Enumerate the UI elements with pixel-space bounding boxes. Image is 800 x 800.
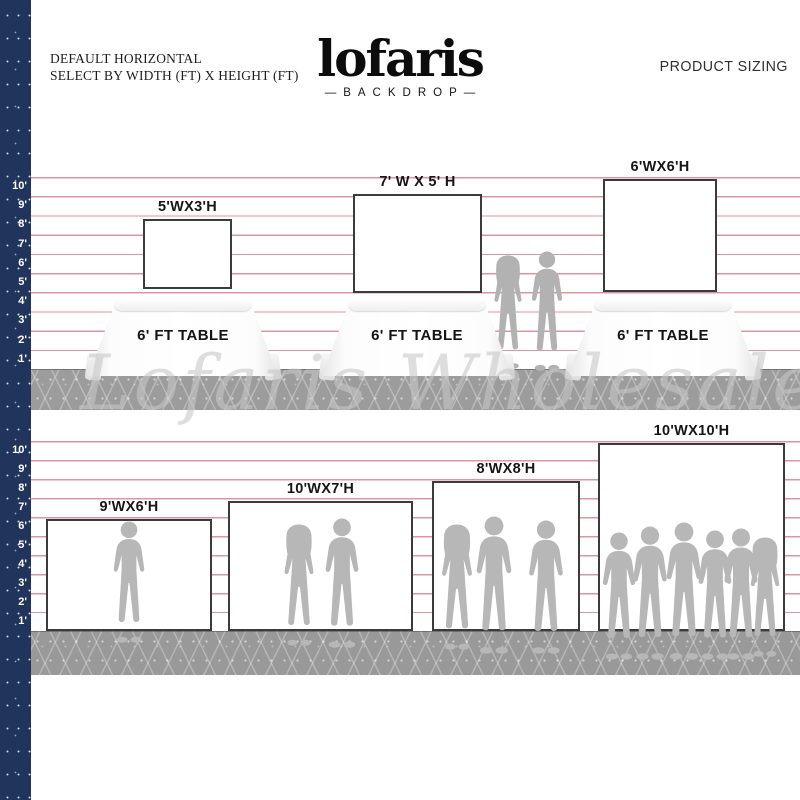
- backdrop-size-label: 8'WX8'H: [477, 461, 536, 477]
- tabletop: [348, 298, 486, 311]
- ruler-label: 2': [0, 331, 27, 350]
- table-label: 6' FT TABLE: [322, 327, 512, 344]
- table: 6' FT TABLE: [88, 298, 278, 376]
- brand-logo: lofaris —BACKDROP—: [290, 34, 510, 99]
- table-label: 6' FT TABLE: [88, 327, 278, 344]
- ruler-label: 8': [0, 479, 27, 498]
- backdrop-box-6x6: 6'WX6'H: [603, 179, 717, 292]
- brand-name: lofaris: [290, 34, 510, 84]
- backdrop-size-label: 9'WX6'H: [100, 499, 159, 515]
- backdrop-box-9x6: 9'WX6'H: [46, 519, 212, 631]
- backdrop-box-5x3: 5'WX3'H: [143, 219, 232, 289]
- page-title: PRODUCT SIZING: [647, 58, 788, 75]
- ruler-label: 3': [0, 574, 27, 593]
- backdrop-size-label: 6'WX6'H: [631, 159, 690, 175]
- backdrop-box-10x7: 10'WX7'H: [228, 501, 413, 631]
- ruler-label: 1': [0, 612, 27, 631]
- ruler-label: 9': [0, 460, 27, 479]
- tabletop: [114, 298, 252, 311]
- backdrop-size-label: 10'WX7'H: [287, 481, 354, 497]
- header-instructions: DEFAULT HORIZONTAL SELECT BY WIDTH (FT) …: [50, 50, 299, 84]
- backdrop-box-10x10: 10'WX10'H: [598, 443, 785, 631]
- ruler-label: 5': [0, 273, 27, 292]
- ruler-bottom: 10' 9' 8' 7' 6' 5' 4' 3' 2' 1': [0, 441, 27, 631]
- ruler-label: 4': [0, 292, 27, 311]
- ruler-label: 1': [0, 350, 27, 369]
- ruler-label: 6': [0, 517, 27, 536]
- ruler-label: 10': [0, 441, 27, 460]
- ruler-label: 2': [0, 593, 27, 612]
- ruler-label: 4': [0, 555, 27, 574]
- backdrop-size-label: 7' W X 5' H: [379, 174, 455, 190]
- table: 6' FT TABLE: [322, 298, 512, 376]
- ruler-label: 3': [0, 311, 27, 330]
- ruler-label: 9': [0, 196, 27, 215]
- ruler-label: 7': [0, 498, 27, 517]
- tabletop: [594, 298, 732, 311]
- ruler-label: 10': [0, 177, 27, 196]
- backdrop-size-label: 10'WX10'H: [654, 423, 730, 439]
- ruler-top: 10' 9' 8' 7' 6' 5' 4' 3' 2' 1': [0, 177, 27, 369]
- ruler-label: 8': [0, 215, 27, 234]
- ruler-label: 6': [0, 254, 27, 273]
- backdrop-size-label: 5'WX3'H: [158, 199, 217, 215]
- brand-subtitle: —BACKDROP—: [290, 87, 510, 99]
- ruler-label: 7': [0, 235, 27, 254]
- table: 6' FT TABLE: [568, 298, 758, 376]
- product-sizing-chart: DEFAULT HORIZONTAL SELECT BY WIDTH (FT) …: [0, 0, 800, 800]
- header-line-2: SELECT BY WIDTH (FT) X HEIGHT (FT): [50, 67, 299, 84]
- backdrop-box-7x5: 7' W X 5' H: [353, 194, 482, 293]
- table-label: 6' FT TABLE: [568, 327, 758, 344]
- measuring-tape-strip: [0, 0, 31, 800]
- ruler-label: 5': [0, 536, 27, 555]
- header-line-1: DEFAULT HORIZONTAL: [50, 50, 299, 67]
- backdrop-box-8x8: 8'WX8'H: [432, 481, 580, 631]
- floor-strip-bottom: [31, 631, 800, 675]
